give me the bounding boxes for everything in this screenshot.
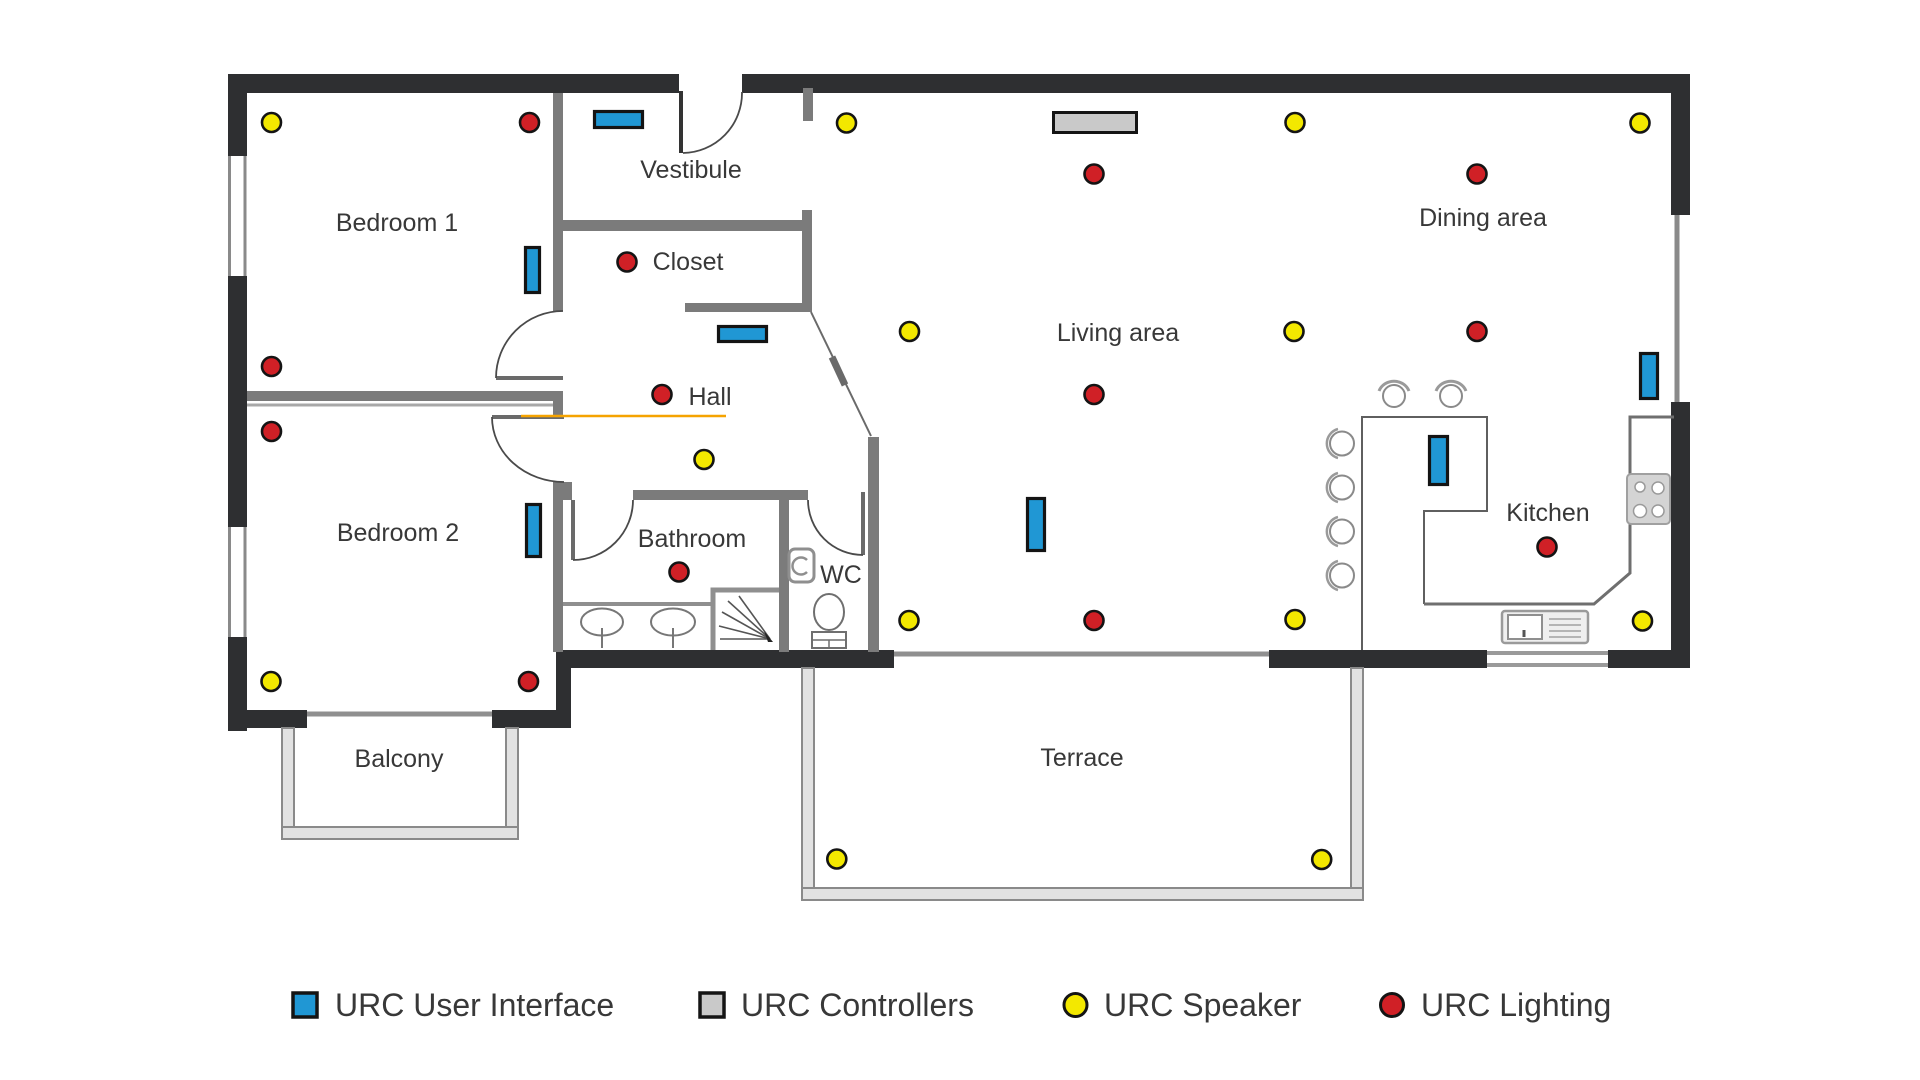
svg-text:URC User Interface: URC User Interface bbox=[335, 987, 614, 1023]
svg-text:Balcony: Balcony bbox=[355, 745, 444, 773]
svg-text:Hall: Hall bbox=[688, 383, 731, 411]
svg-text:Bedroom 1: Bedroom 1 bbox=[336, 209, 458, 237]
svg-text:WC: WC bbox=[820, 561, 862, 589]
svg-text:Closet: Closet bbox=[653, 248, 724, 276]
svg-text:Kitchen: Kitchen bbox=[1506, 499, 1589, 527]
svg-text:Vestibule: Vestibule bbox=[640, 156, 741, 184]
svg-text:URC Lighting: URC Lighting bbox=[1421, 987, 1611, 1023]
svg-text:URC Speaker: URC Speaker bbox=[1104, 987, 1302, 1023]
svg-text:Bedroom 2: Bedroom 2 bbox=[337, 519, 459, 547]
svg-text:Bathroom: Bathroom bbox=[638, 525, 746, 553]
svg-text:Living area: Living area bbox=[1057, 319, 1179, 347]
svg-text:Dining area: Dining area bbox=[1419, 204, 1547, 232]
svg-text:URC Controllers: URC Controllers bbox=[741, 987, 974, 1023]
svg-text:Terrace: Terrace bbox=[1040, 744, 1123, 772]
